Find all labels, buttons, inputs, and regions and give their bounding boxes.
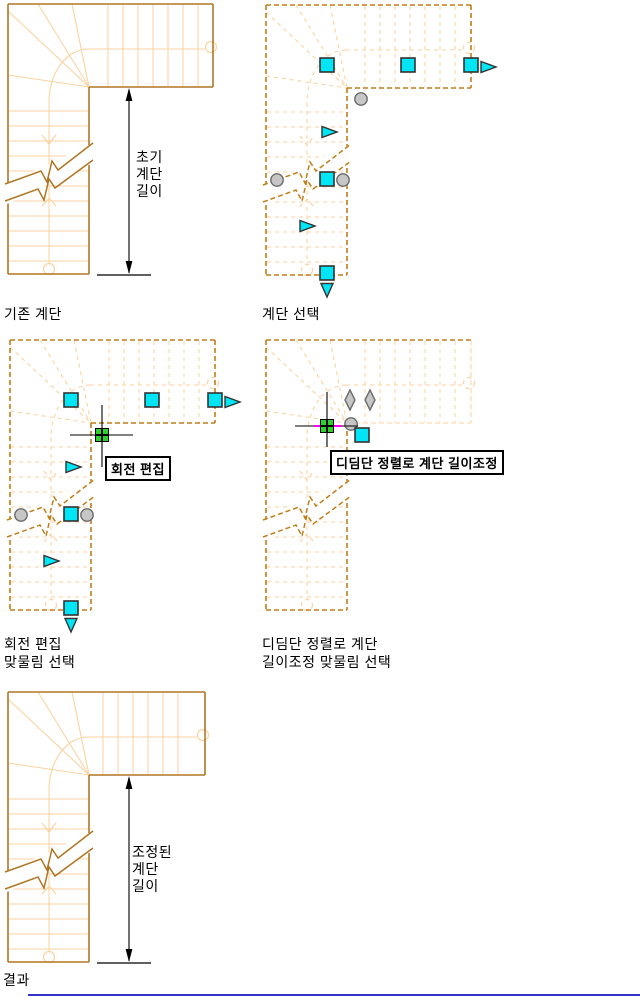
grip-tooltip-tread-align: 디딤단 정렬로 계단 길이조정	[330, 450, 504, 475]
grip-triangle-right[interactable]	[44, 556, 59, 567]
stair-diagram-rotate-edit	[0, 326, 258, 645]
grip-triangle-down[interactable]	[65, 619, 77, 633]
grip-diamond[interactable]	[365, 390, 375, 410]
grip-square[interactable]	[355, 428, 369, 442]
grip-circle[interactable]	[355, 93, 367, 105]
grip-square[interactable]	[64, 393, 78, 407]
grip-square[interactable]	[464, 58, 478, 72]
grip-square[interactable]	[64, 507, 78, 521]
grip-triangle-down[interactable]	[321, 284, 333, 298]
grip-square[interactable]	[64, 601, 78, 615]
bottom-divider-rule	[28, 994, 640, 996]
stair-treads	[266, 340, 475, 611]
grip-triangle-right[interactable]	[66, 462, 81, 473]
stair-diagram-selected	[252, 0, 514, 310]
grip-circle[interactable]	[81, 509, 93, 521]
grip-square[interactable]	[208, 393, 222, 407]
stair-treads	[8, 692, 209, 963]
grip-circle[interactable]	[15, 509, 27, 521]
grip-triangle-right[interactable]	[225, 397, 240, 408]
grip-triangle-right[interactable]	[481, 62, 496, 73]
stair-outline	[266, 5, 471, 275]
grip-square[interactable]	[145, 393, 159, 407]
grip-triangle-right[interactable]	[300, 221, 315, 232]
grip-circle[interactable]	[271, 174, 283, 186]
caption-existing-stair: 기존 계단	[4, 305, 62, 323]
grip-tooltip-rotate-edit: 회전 편집	[105, 456, 171, 481]
help-illustration-page: 초기 계단 길이 기존 계단 계단 선택 회전 편집 회전 편집 맞물림 선택 …	[0, 0, 640, 997]
stair-outline	[8, 692, 205, 962]
grip-triangle-right[interactable]	[322, 127, 337, 138]
caption-rotate-edit-grip: 회전 편집 맞물림 선택	[4, 635, 75, 671]
stair-outline	[266, 340, 471, 610]
stair-treads	[266, 5, 475, 276]
grip-hot-green[interactable]	[96, 429, 109, 442]
dimension-label-adjusted-length: 조정된 계단 길이	[132, 844, 172, 895]
dimension-label-initial-length: 초기 계단 길이	[136, 149, 163, 200]
stair-diagram-result	[0, 678, 256, 997]
stair-diagram-tread-align	[252, 326, 514, 645]
stair-treads	[8, 4, 217, 275]
caption-stair-selected: 계단 선택	[262, 305, 320, 323]
stair-outline	[8, 4, 213, 274]
caption-result: 결과	[3, 971, 30, 989]
grip-square[interactable]	[401, 58, 415, 72]
grip-circle[interactable]	[337, 174, 349, 186]
grip-square[interactable]	[320, 58, 334, 72]
grip-diamond[interactable]	[345, 390, 355, 410]
stair-diagram-existing	[0, 0, 256, 309]
caption-tread-align-grip: 디딤단 정렬로 계단 길이조정 맞물림 선택	[262, 635, 391, 671]
grip-hot-green[interactable]	[321, 420, 334, 433]
grip-square[interactable]	[320, 172, 334, 186]
grip-square[interactable]	[320, 266, 334, 280]
